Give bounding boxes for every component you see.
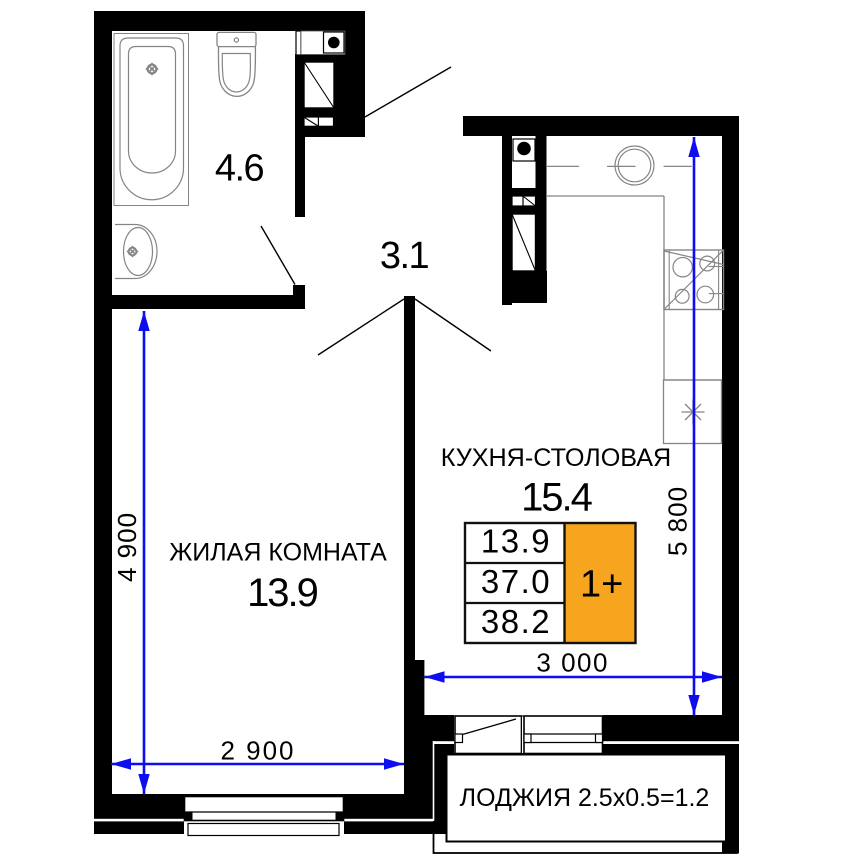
svg-text:15.4: 15.4 (521, 476, 593, 520)
svg-text:ЛОДЖИЯ 2.5x0.5=1.2: ЛОДЖИЯ 2.5x0.5=1.2 (460, 784, 710, 812)
svg-text:37.0: 37.0 (481, 563, 551, 600)
svg-text:1+: 1+ (580, 563, 623, 605)
svg-text:5 800: 5 800 (663, 486, 693, 556)
svg-text:ЖИЛАЯ КОМНАТА: ЖИЛАЯ КОМНАТА (169, 539, 387, 567)
svg-text:13.9: 13.9 (481, 523, 551, 560)
svg-text:4 900: 4 900 (112, 512, 142, 582)
svg-text:2 900: 2 900 (220, 736, 295, 766)
svg-text:КУХНЯ-СТОЛОВАЯ: КУХНЯ-СТОЛОВАЯ (441, 444, 672, 472)
svg-text:13.9: 13.9 (247, 571, 318, 615)
svg-text:38.2: 38.2 (481, 603, 551, 640)
svg-text:3.1: 3.1 (380, 235, 429, 277)
svg-text:4.6: 4.6 (215, 148, 264, 190)
svg-text:3 000: 3 000 (536, 648, 609, 678)
